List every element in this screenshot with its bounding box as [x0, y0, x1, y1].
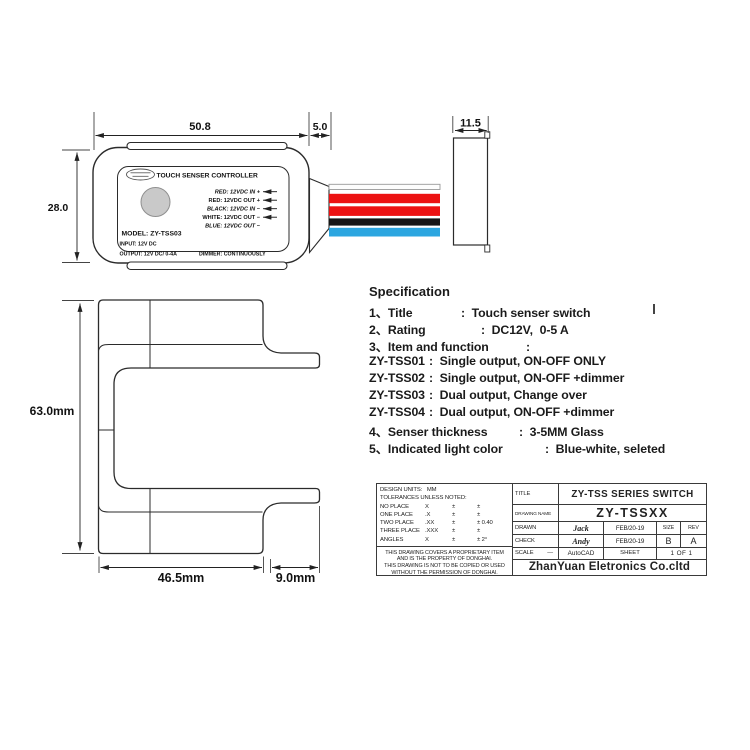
- title-label: TITLE: [513, 484, 559, 504]
- spec-row-item-function: 3、Item and function:: [369, 337, 669, 354]
- spec-value: :: [526, 340, 530, 354]
- title-block: DESIGN UNITS: MM TOLERANCES UNLESS NOTED…: [376, 483, 707, 576]
- tolerances-heading: TOLERANCES UNLESS NOTED:: [380, 494, 509, 502]
- model-line: MODEL: ZY-TSS03: [122, 231, 182, 238]
- tolerance-row: TWO PLACE.XX±± 0.40: [380, 519, 509, 527]
- sheet-value: 1 OF 1: [657, 548, 706, 559]
- proprietary-note: THIS DRAWING COVERS A PROPRIETARY ITEM A…: [377, 547, 512, 577]
- size-label: SIZE: [657, 522, 681, 534]
- note-line: AND IS THE PROPERTY OF DONGHAI.: [377, 556, 512, 563]
- dim-11-5: 11.5: [460, 118, 481, 130]
- spec-row-title: 1、Title: Touch senser switch: [369, 303, 669, 320]
- wire-label-red-in: RED: 12VDC IN +: [215, 190, 261, 196]
- tolerance-table: DESIGN UNITS: MM TOLERANCES UNLESS NOTED…: [377, 484, 512, 547]
- dim-5-0: 5.0: [313, 121, 328, 133]
- wire-black: [329, 218, 440, 225]
- wire-white: [329, 184, 440, 189]
- touch-pad: [141, 188, 170, 217]
- scale-row: SCALE — AutoCAD SHEET 1 OF 1: [513, 548, 706, 560]
- title-panel: TITLE ZY-TSS SERIES SWITCH DRAWING NAME …: [513, 484, 706, 575]
- spec-label: ZY-TSS03: [369, 388, 429, 402]
- title-row: TITLE ZY-TSS SERIES SWITCH: [513, 484, 706, 505]
- spec-value: : Single output, ON-OFF +dimmer: [429, 371, 624, 385]
- rev-value: A: [681, 535, 706, 547]
- dim-50-8: 50.8: [189, 121, 210, 133]
- device-front-view: TOUCH SENSER CONTROLLER RED: 12VDC IN + …: [93, 143, 440, 270]
- tolerance-row: ONE PLACE.X±±: [380, 511, 509, 519]
- design-units: DESIGN UNITS: MM: [380, 486, 509, 494]
- check-row: CHECK Andy FEB/20-19 B A: [513, 535, 706, 548]
- wire-red-1: [329, 194, 440, 203]
- dimension-body-height: 28.0: [48, 150, 90, 263]
- plate-title: TOUCH SENSER CONTROLLER: [157, 173, 258, 180]
- wire-label-blue-out: BLUE: 12VDC OUT −: [205, 224, 261, 230]
- bottom-rail: [127, 262, 287, 270]
- drawing-name-row: DRAWING NAME ZY-TSSXX: [513, 505, 706, 522]
- top-rail: [127, 143, 287, 150]
- dimension-profile-height: 63.0mm: [30, 301, 94, 554]
- dim-9-0mm: 9.0mm: [276, 571, 316, 585]
- spec-value: : Dual output, Change over: [429, 388, 587, 402]
- note-line: WITHOUT THE PERMISSION OF DONGHAI.: [377, 570, 512, 577]
- company-row: ZhanYuan Eletronics Co.cltd: [513, 560, 706, 576]
- specification-block: Specification 1、Title: Touch senser swit…: [369, 284, 669, 456]
- scale-cell: SCALE —: [513, 548, 559, 559]
- spec-row-tss04: ZY-TSS04: Dual output, ON-OFF +dimmer: [369, 405, 669, 422]
- note-line: THIS DRAWING IS NOT TO BE COPIED OR USED: [377, 563, 512, 570]
- drawing-name-value: ZY-TSSXX: [559, 505, 706, 521]
- side-tab-top: [485, 132, 490, 138]
- check-signature: Andy: [559, 535, 604, 547]
- spec-row-light-color: 5、Indicated light color: Blue-white, sel…: [369, 439, 669, 456]
- spec-label: 2、Rating: [369, 320, 481, 338]
- dim-28-0: 28.0: [48, 202, 69, 214]
- spec-value: : Single output, ON-OFF ONLY: [429, 354, 606, 368]
- scale-label: SCALE: [515, 550, 534, 556]
- dimension-arm-overhang: 9.0mm: [271, 506, 320, 585]
- wire-label-black-in: BLACK: 12VDC IN −: [207, 207, 261, 213]
- profile-outline: [99, 300, 320, 554]
- dim-46-5mm: 46.5mm: [158, 571, 205, 585]
- wire-blue: [329, 228, 440, 237]
- dimension-side-depth: 11.5: [453, 116, 488, 133]
- drawn-row: DRAWN Jack FEB/20-19 SIZE REV: [513, 522, 706, 535]
- tolerance-row: THREE PLACE.XXX±±: [380, 527, 509, 535]
- tolerance-row: ANGLESX±± 2°: [380, 536, 509, 544]
- wire-label-white-out: WHITE: 12VDC OUT −: [202, 215, 260, 221]
- spec-row-tss03: ZY-TSS03: Dual output, Change over: [369, 388, 669, 405]
- rev-label: REV: [681, 522, 706, 534]
- spec-row-rating: 2、Rating: DC12V, 0-5 A: [369, 320, 669, 337]
- input-line: INPUT: 12V DC: [120, 242, 157, 248]
- dimension-profile-width: 46.5mm: [99, 557, 264, 586]
- drawing-name-label: DRAWING NAME: [513, 505, 559, 521]
- spec-label: 5、Indicated light color: [369, 439, 545, 457]
- title-value: ZY-TSS SERIES SWITCH: [559, 484, 706, 504]
- size-value: B: [657, 535, 681, 547]
- spec-value: : 3-5MM Glass: [519, 425, 604, 439]
- spec-label: ZY-TSS04: [369, 405, 429, 419]
- brand-logo-icon: [127, 169, 155, 180]
- spec-value: : DC12V, 0-5 A: [481, 323, 569, 337]
- device-side-view: [454, 132, 490, 252]
- spec-row-tss01: ZY-TSS01: Single output, ON-OFF ONLY: [369, 354, 669, 371]
- spec-label: ZY-TSS02: [369, 371, 429, 385]
- wire-harness: [329, 184, 440, 236]
- wire-label-red-out: RED: 12VDC OUT +: [209, 198, 261, 204]
- spec-label: 3、Item and function: [369, 337, 526, 355]
- sheet-label: SHEET: [604, 548, 657, 559]
- company-name: ZhanYuan Eletronics Co.cltd: [529, 561, 690, 573]
- note-line: THIS DRAWING COVERS A PROPRIETARY ITEM: [377, 550, 512, 557]
- drawn-signature: Jack: [559, 522, 604, 534]
- side-tab-bottom: [485, 245, 490, 252]
- cad-tool: AutoCAD: [559, 548, 604, 559]
- wire-connector: [310, 179, 330, 253]
- spec-label: 4、Senser thickness: [369, 422, 519, 440]
- drawing-sheet: TOUCH SENSER CONTROLLER RED: 12VDC IN + …: [0, 0, 750, 750]
- dim-63-0mm: 63.0mm: [30, 404, 75, 418]
- check-date: FEB/20-19: [604, 535, 657, 547]
- wire-red-2: [329, 206, 440, 216]
- drawn-date: FEB/20-19: [604, 522, 657, 534]
- dimmer-line: DIMMER: CONTINUOUSLY: [199, 252, 266, 258]
- spec-label: 1、Title: [369, 303, 461, 321]
- spec-row-thickness: 4、Senser thickness: 3-5MM Glass: [369, 422, 669, 439]
- scale-value: —: [547, 550, 553, 556]
- drawn-label: DRAWN: [513, 522, 559, 534]
- spec-value: : Blue-white, seleted: [545, 442, 665, 456]
- spec-row-tss02: ZY-TSS02: Single output, ON-OFF +dimmer: [369, 371, 669, 388]
- clamp-profile-view: [99, 300, 320, 554]
- check-label: CHECK: [513, 535, 559, 547]
- specification-heading: Specification: [369, 284, 669, 299]
- tolerance-panel: DESIGN UNITS: MM TOLERANCES UNLESS NOTED…: [377, 484, 513, 575]
- tolerance-row: NO PLACEX±±: [380, 503, 509, 511]
- stray-mark: [653, 304, 655, 314]
- output-line: OUTPUT: 12V DC/ 0-4A: [120, 252, 178, 258]
- spec-value: : Dual output, ON-OFF +dimmer: [429, 405, 614, 419]
- spec-value: : Touch senser switch: [461, 306, 590, 320]
- spec-label: ZY-TSS01: [369, 354, 429, 368]
